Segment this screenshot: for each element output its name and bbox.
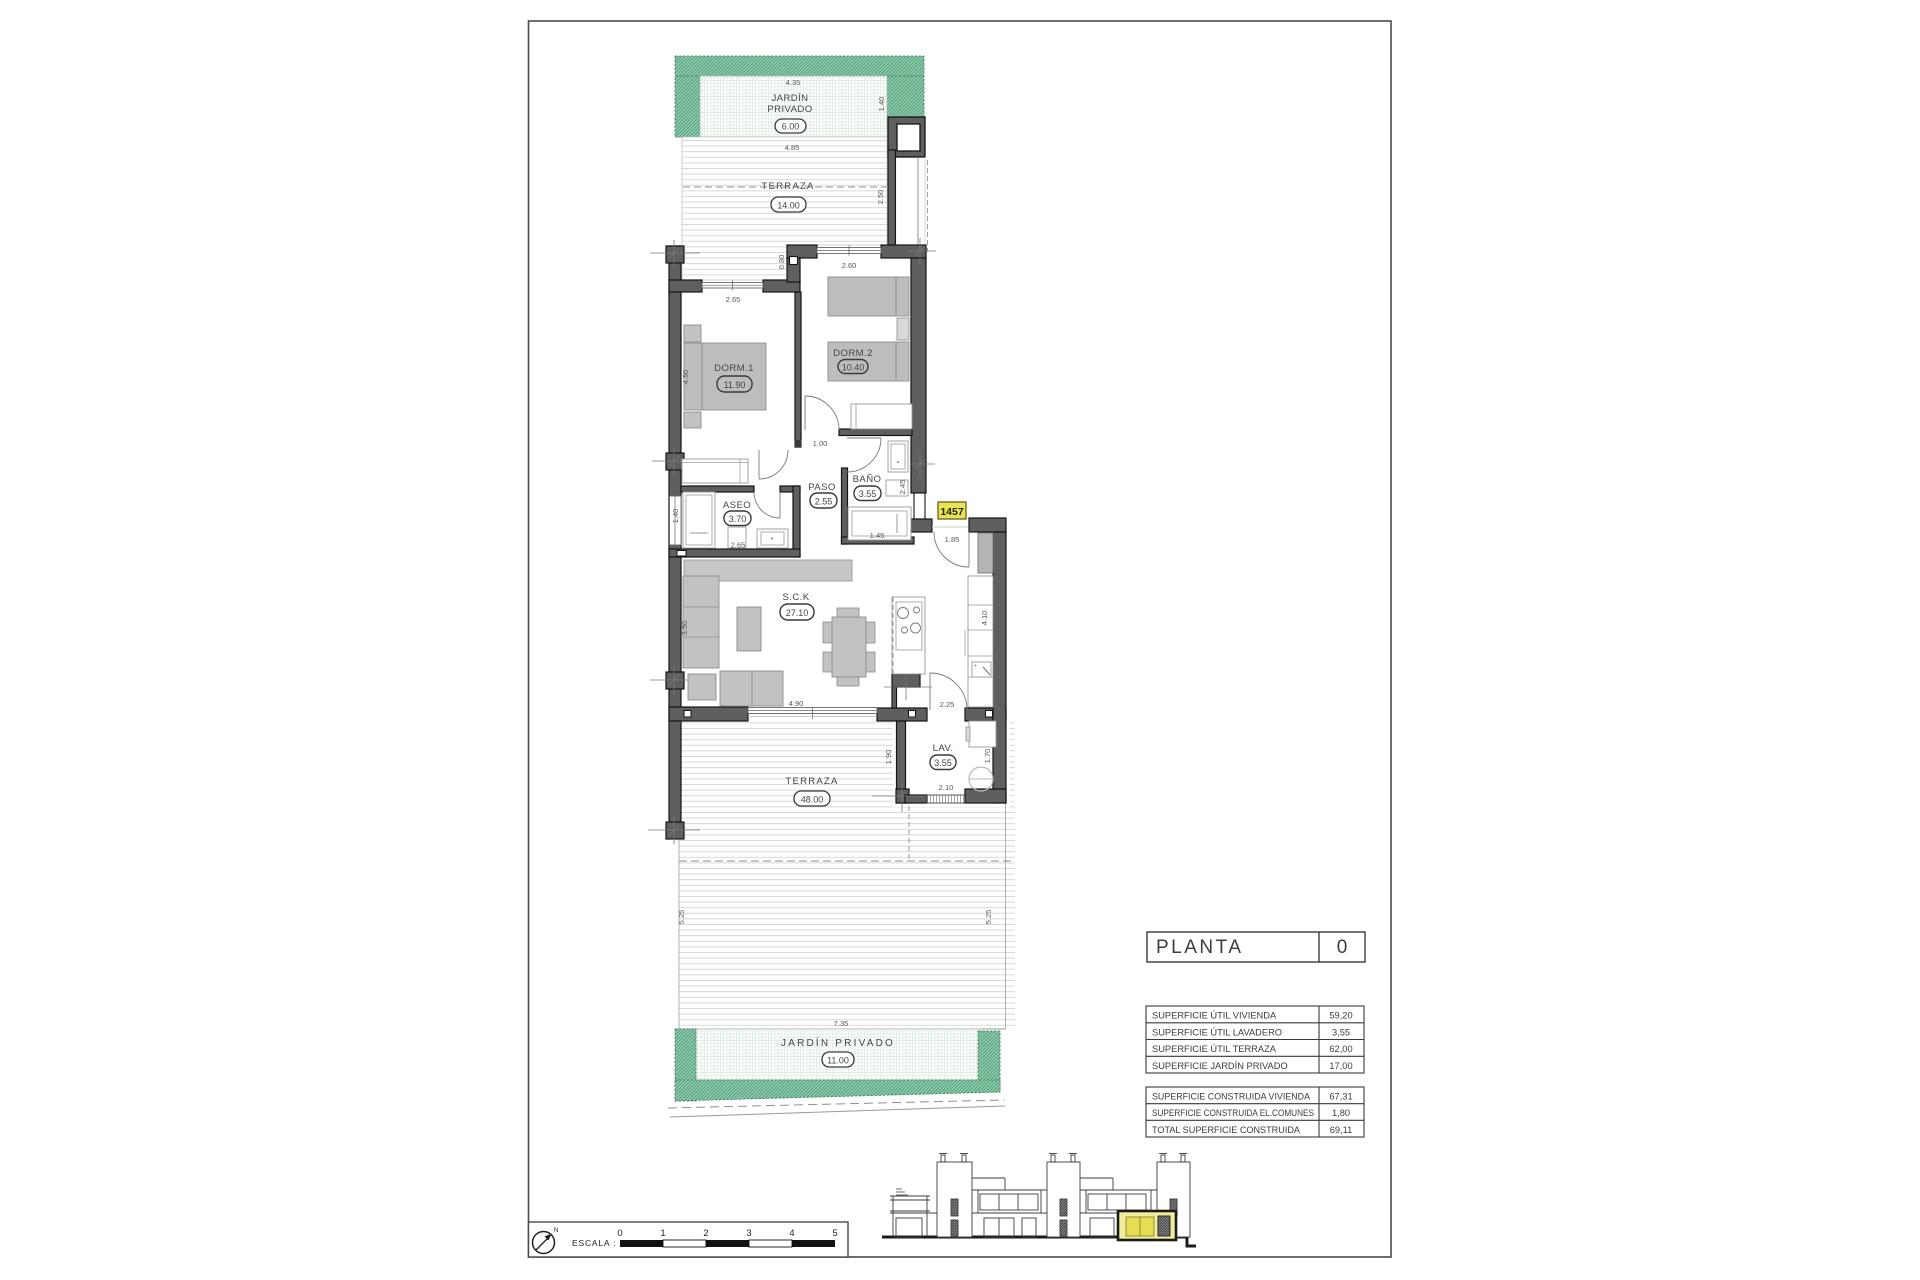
- svg-text:2.65: 2.65: [726, 295, 741, 304]
- svg-text:59,20: 59,20: [1329, 1011, 1352, 1021]
- svg-text:2: 2: [703, 1228, 708, 1239]
- svg-text:PRIVADO: PRIVADO: [767, 104, 812, 115]
- svg-text:JARDÍN: JARDÍN: [771, 93, 808, 104]
- svg-text:4.10: 4.10: [980, 611, 989, 626]
- svg-text:62,00: 62,00: [1329, 1044, 1352, 1054]
- svg-text:1: 1: [660, 1228, 665, 1239]
- svg-text:SUPERFICIE JARDÍN PRIVADO: SUPERFICIE JARDÍN PRIVADO: [1152, 1061, 1288, 1071]
- svg-text:7.35: 7.35: [834, 1019, 849, 1028]
- svg-text:5.25: 5.25: [677, 910, 686, 925]
- svg-text:PASO: PASO: [808, 482, 836, 493]
- svg-text:14.00: 14.00: [777, 200, 800, 210]
- svg-text:TERRAZA: TERRAZA: [785, 776, 838, 787]
- svg-text:2.65: 2.65: [731, 541, 746, 550]
- svg-text:4.90: 4.90: [789, 699, 804, 708]
- svg-text:3: 3: [746, 1228, 751, 1239]
- svg-text:27.10: 27.10: [786, 608, 809, 618]
- svg-text:ESCALA :: ESCALA :: [572, 1238, 617, 1248]
- svg-text:4: 4: [789, 1228, 794, 1239]
- svg-text:11.00: 11.00: [827, 1055, 849, 1065]
- svg-text:10.40: 10.40: [842, 362, 865, 372]
- svg-text:1.00: 1.00: [813, 439, 828, 448]
- svg-text:1.85: 1.85: [945, 535, 960, 544]
- svg-text:4.85: 4.85: [785, 143, 800, 152]
- svg-text:1.70: 1.70: [983, 749, 992, 764]
- svg-text:1,80: 1,80: [1332, 1108, 1350, 1118]
- svg-text:11.90: 11.90: [724, 380, 746, 390]
- svg-text:69,11: 69,11: [1330, 1125, 1353, 1135]
- svg-text:0: 0: [1337, 937, 1348, 958]
- svg-text:1.40: 1.40: [671, 509, 680, 524]
- svg-text:LAV.: LAV.: [933, 743, 954, 754]
- svg-text:5: 5: [832, 1228, 837, 1239]
- svg-text:TOTAL SUPERFICIE CONSTRUIDA: TOTAL SUPERFICIE CONSTRUIDA: [1152, 1125, 1301, 1135]
- svg-text:5.25: 5.25: [984, 910, 993, 925]
- svg-text:DORM.1: DORM.1: [714, 363, 754, 374]
- svg-text:2.60: 2.60: [842, 261, 857, 270]
- svg-text:SUPERFICIE ÚTIL TERRAZA: SUPERFICIE ÚTIL TERRAZA: [1152, 1044, 1277, 1054]
- svg-text:4.35: 4.35: [786, 78, 801, 87]
- svg-text:TERRAZA: TERRAZA: [761, 181, 814, 192]
- svg-text:DORM.2: DORM.2: [833, 348, 873, 359]
- svg-text:2.10: 2.10: [939, 783, 954, 792]
- svg-text:SUPERFICIE CONSTRUIDA VIVIENDA: SUPERFICIE CONSTRUIDA VIVIENDA: [1152, 1092, 1311, 1102]
- svg-text:SUPERFICIE ÚTIL LAVADERO: SUPERFICIE ÚTIL LAVADERO: [1152, 1027, 1282, 1037]
- svg-text:S.C.K: S.C.K: [782, 592, 809, 603]
- svg-text:67,31: 67,31: [1329, 1092, 1352, 1102]
- svg-text:48.00: 48.00: [801, 795, 824, 805]
- svg-text:2.45: 2.45: [898, 480, 907, 495]
- svg-text:6.00: 6.00: [782, 121, 800, 131]
- svg-text:4.50: 4.50: [681, 370, 690, 385]
- svg-text:1.45: 1.45: [870, 531, 885, 540]
- svg-text:JARDÍN PRIVADO: JARDÍN PRIVADO: [781, 1036, 895, 1049]
- svg-text:1457: 1457: [940, 506, 964, 518]
- svg-text:BAÑO: BAÑO: [853, 474, 882, 485]
- svg-text:0: 0: [617, 1228, 622, 1239]
- svg-text:17,00: 17,00: [1329, 1061, 1352, 1071]
- svg-text:3,55: 3,55: [1332, 1027, 1350, 1037]
- svg-text:3.55: 3.55: [934, 758, 952, 768]
- svg-text:2.55: 2.55: [815, 497, 833, 507]
- svg-text:2.50: 2.50: [876, 190, 885, 205]
- svg-text:3.50: 3.50: [680, 621, 689, 636]
- svg-text:1.90: 1.90: [884, 750, 893, 765]
- svg-text:3.55: 3.55: [859, 489, 877, 499]
- svg-text:3.70: 3.70: [729, 514, 747, 524]
- svg-text:ASEO: ASEO: [723, 500, 751, 511]
- svg-text:1.40: 1.40: [877, 97, 886, 112]
- svg-text:SUPERFICIE CONSTRUIDA EL.COMUN: SUPERFICIE CONSTRUIDA EL.COMUNES: [1152, 1108, 1314, 1118]
- svg-text:PLANTA: PLANTA: [1156, 937, 1244, 958]
- svg-text:SUPERFICIE ÚTIL VIVIENDA: SUPERFICIE ÚTIL VIVIENDA: [1152, 1011, 1277, 1021]
- svg-text:N: N: [554, 1228, 558, 1234]
- svg-text:0.80: 0.80: [777, 255, 786, 270]
- svg-text:2.25: 2.25: [940, 700, 955, 709]
